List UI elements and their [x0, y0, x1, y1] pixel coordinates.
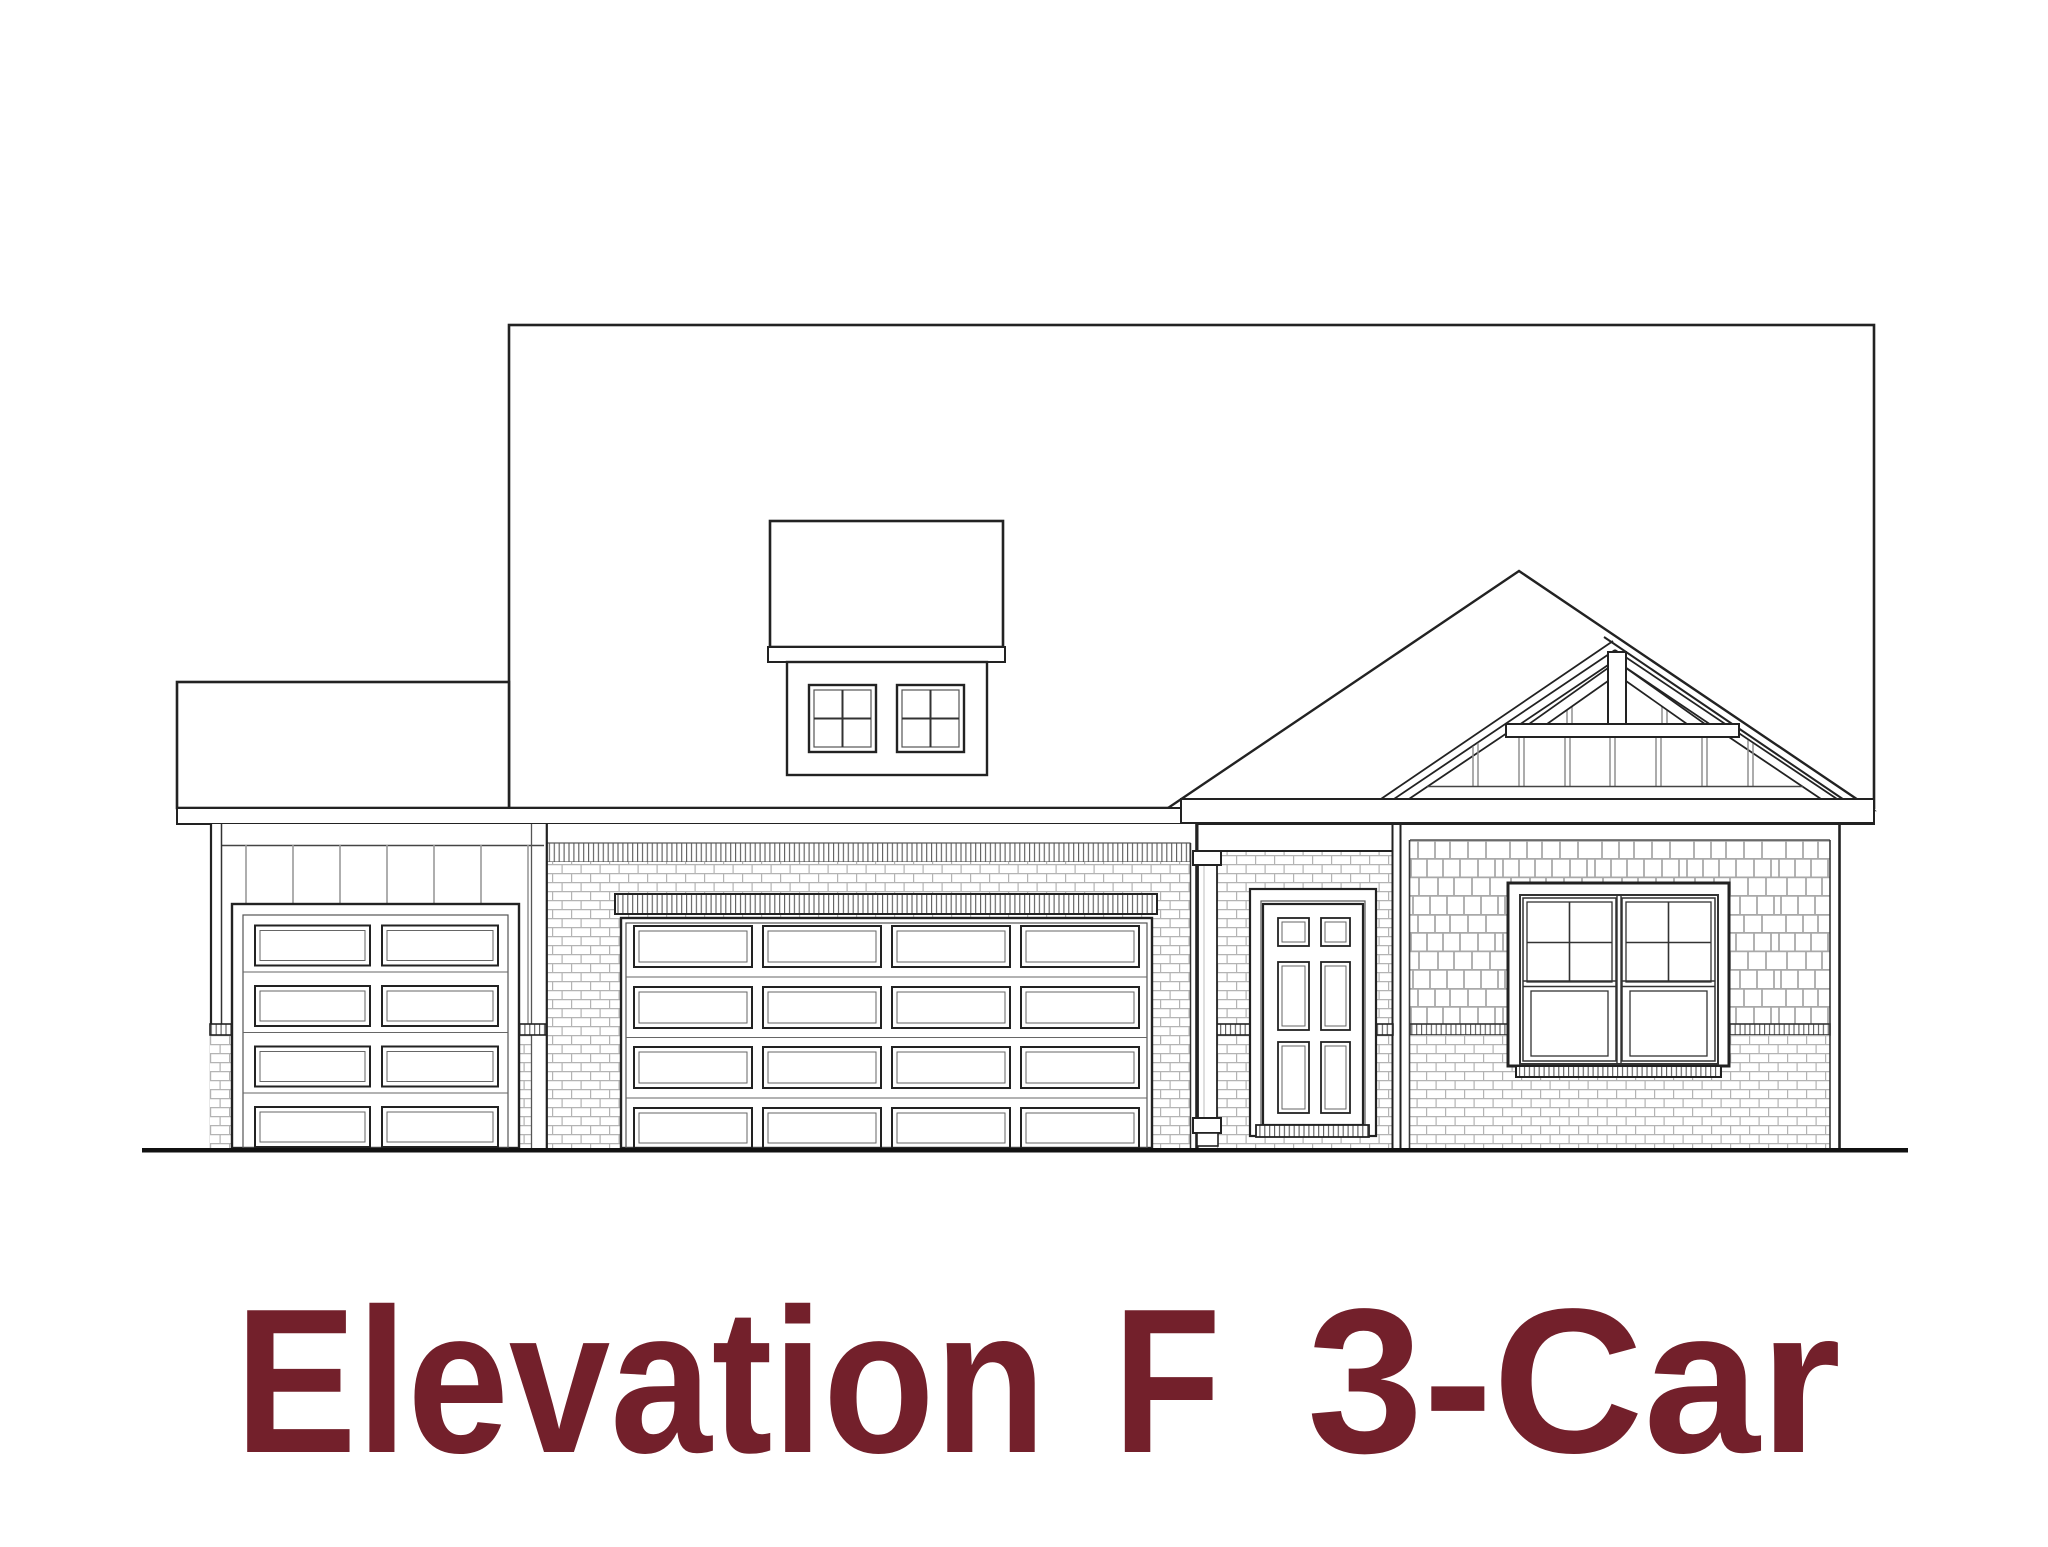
svg-text:Elevation: Elevation [235, 1266, 1046, 1496]
svg-text:F: F [1113, 1266, 1221, 1496]
svg-text:3-Car: 3-Car [1307, 1266, 1841, 1496]
